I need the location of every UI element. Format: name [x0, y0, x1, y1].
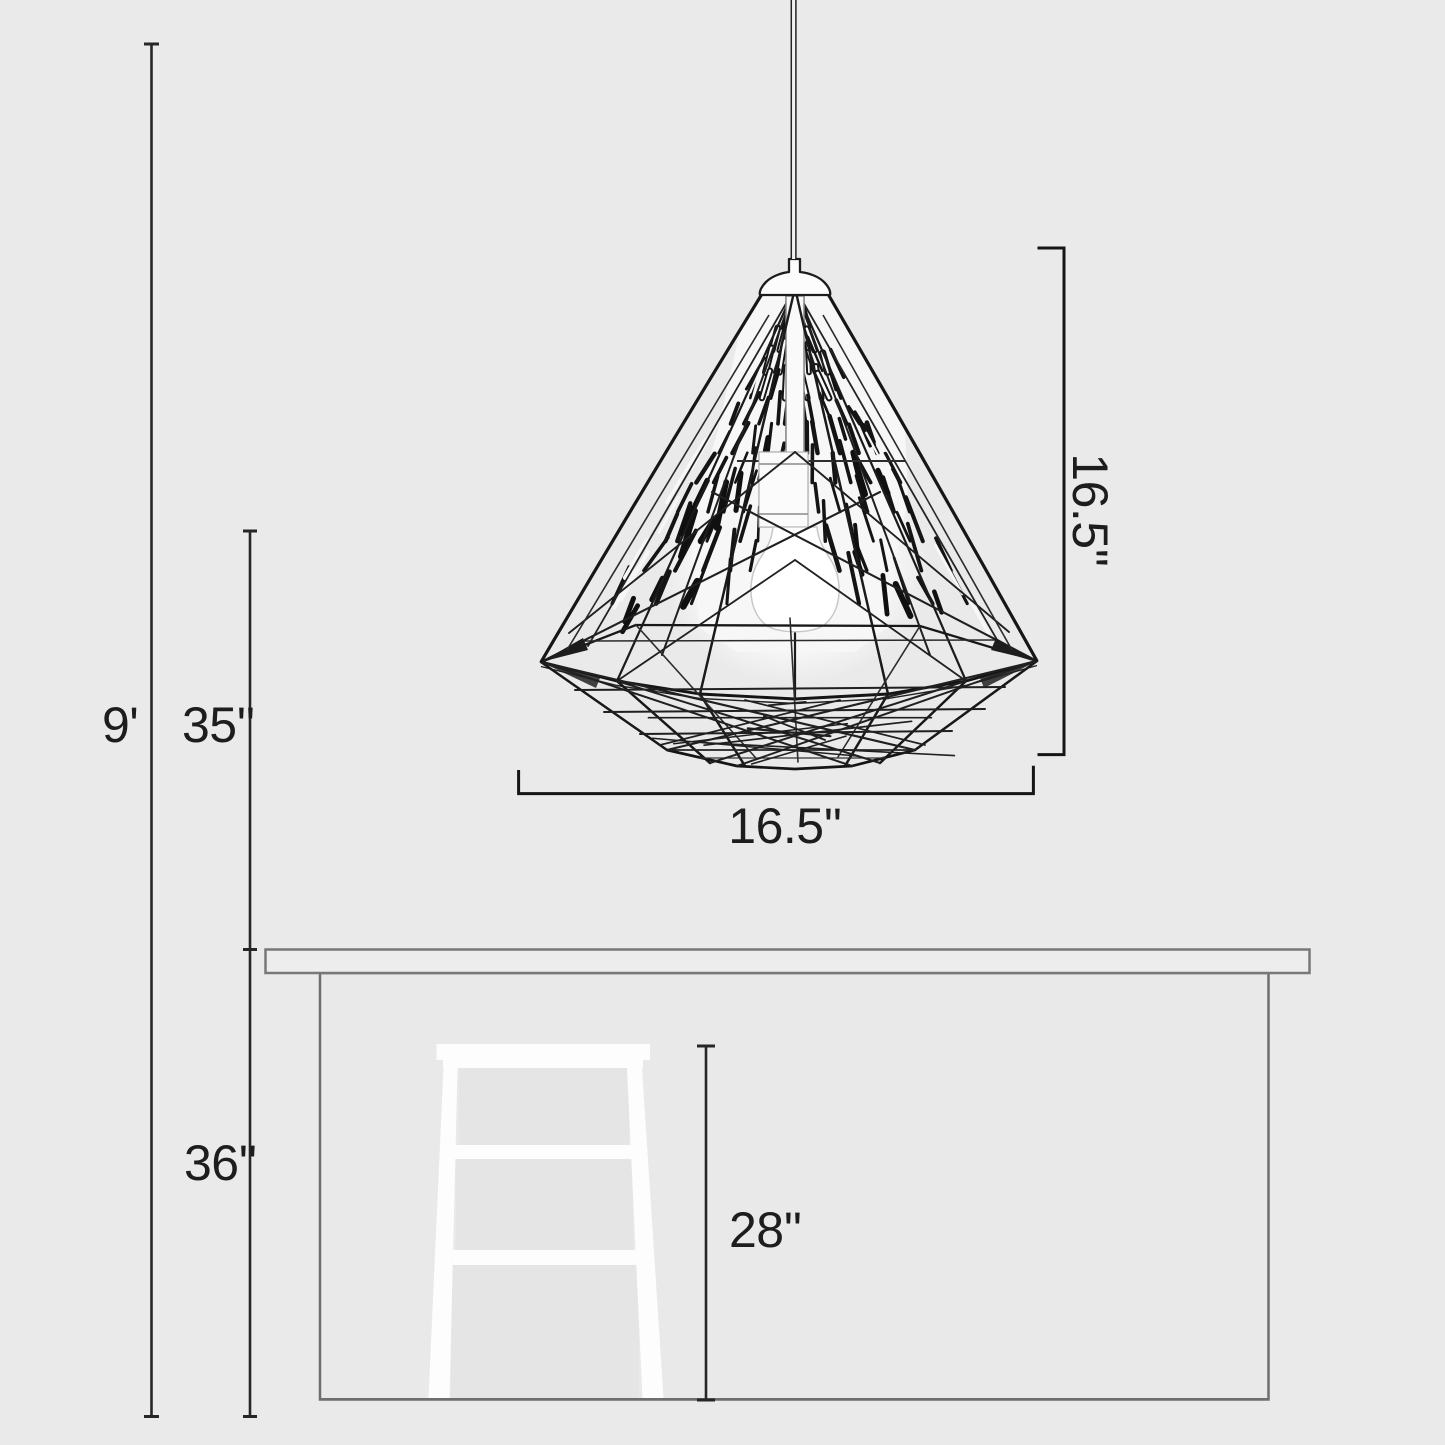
svg-text:16.5'': 16.5'': [728, 798, 841, 854]
svg-text:35'': 35'': [182, 697, 255, 753]
svg-text:16.5'': 16.5'': [1062, 453, 1118, 566]
svg-text:36'': 36'': [184, 1135, 257, 1191]
svg-text:28'': 28'': [729, 1202, 802, 1258]
svg-text:9': 9': [102, 697, 138, 753]
